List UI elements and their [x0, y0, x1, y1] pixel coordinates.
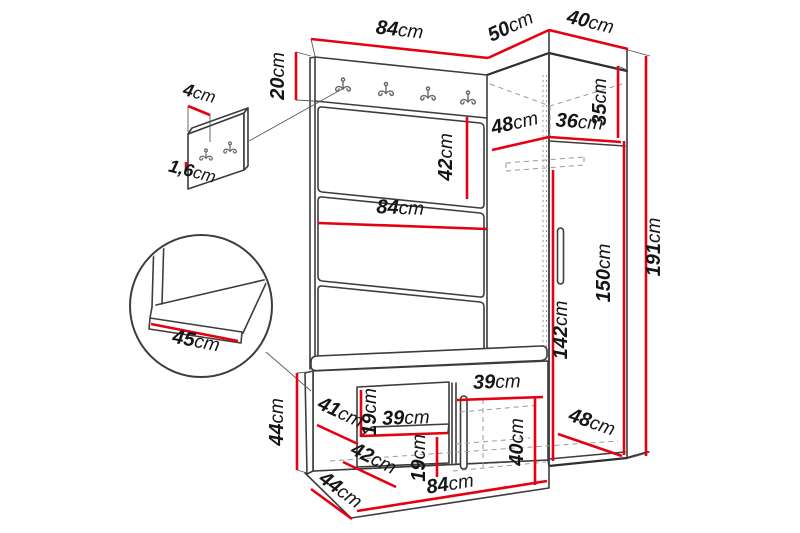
- wall-panel: [249, 57, 487, 369]
- dim-panel-width-label: 84cm: [376, 196, 424, 220]
- hook-panel-side: [244, 108, 248, 170]
- dim-wardrobe-top-width-label: 40cm: [564, 6, 616, 39]
- magnifier-leader-line: [266, 352, 311, 391]
- furniture-dimension-diagram: 84cm 50cm 40cm 20cm 4cm 1,6cm 42cm 84cm …: [0, 0, 800, 533]
- seat-corner-magnifier: [130, 235, 311, 391]
- dim-top-width-label: 84cm: [375, 17, 425, 44]
- dim-panel-section-height-label: 42cm: [435, 133, 457, 182]
- dimension-diagram-page: 84cm 50cm 40cm 20cm 4cm 1,6cm 42cm 84cm …: [0, 0, 800, 533]
- bench-door-handle: [461, 396, 468, 469]
- dim-bench-gap-upper-label: 19cm: [359, 388, 381, 436]
- dim-wardrobe-door-height-label: 150cm: [593, 244, 615, 303]
- dim-wardrobe-top-depth-inner-label: 48cm: [488, 107, 540, 139]
- dim-bench-shelf-width-right-label: 39cm: [473, 370, 521, 394]
- dim-bench-height-label: 44cm: [266, 398, 288, 447]
- dim-line-top-width: [311, 39, 488, 58]
- dim-hook-panel-depth-label: 4cm: [180, 79, 218, 107]
- dim-wardrobe-height-label: 191cm: [643, 218, 665, 277]
- dim-bench-shelf-width-left-label: 39cm: [382, 406, 430, 430]
- dim-wardrobe-top-height-label: 35cm: [589, 78, 611, 126]
- dim-line-hook-panel-depth: [188, 106, 210, 115]
- dim-bench-gap-lower-label: 19cm: [408, 434, 430, 482]
- wardrobe-door-handle: [558, 228, 564, 284]
- dim-wardrobe-interior-height-label: 142cm: [550, 301, 572, 360]
- upholstered-panels: [318, 107, 484, 365]
- dim-line-wardrobe-top-depth-inner: [492, 137, 549, 150]
- dim-bench-compartment-height-label: 40cm: [506, 418, 528, 467]
- dim-hook-rail-height-label: 20cm: [267, 52, 289, 101]
